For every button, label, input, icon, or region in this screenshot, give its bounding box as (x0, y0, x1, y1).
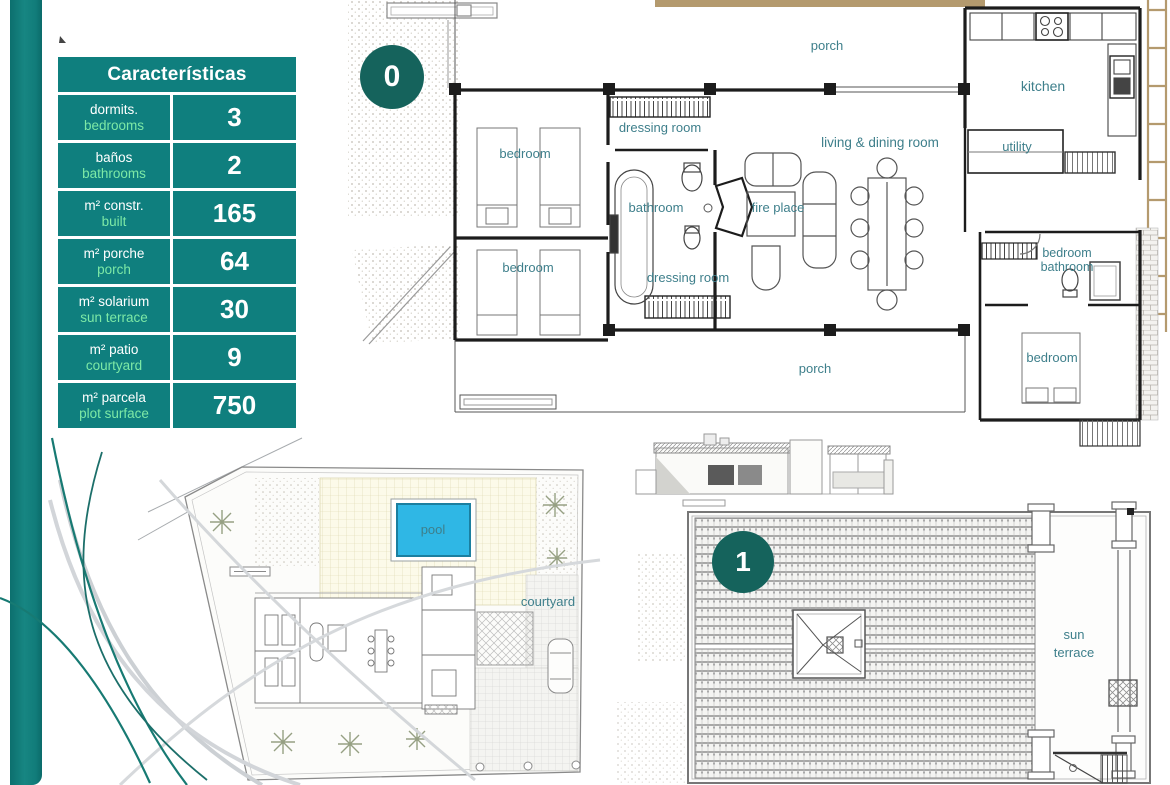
roof-vent (1109, 680, 1137, 706)
label-es: m² constr. (84, 198, 143, 213)
gate (230, 567, 270, 576)
label-es: m² patio (90, 342, 139, 357)
level-1-badge: 1 (712, 531, 774, 593)
label-utility: utility (1002, 139, 1032, 154)
elevation-lines (636, 434, 893, 506)
courtyard-hatch (477, 612, 533, 665)
label-en: bathrooms (82, 166, 146, 181)
stairs-hatch (1065, 152, 1115, 173)
pool: pool (391, 499, 476, 561)
table-title: Características (58, 57, 296, 92)
label-fire-place: fire place (752, 200, 805, 215)
label-living-dining: living & dining room (821, 135, 939, 150)
row-label: m² porche porch (58, 239, 170, 284)
cursor-mark (59, 36, 66, 43)
left-accent-bar (10, 0, 42, 785)
level-0-badge: 0 (360, 45, 424, 109)
row-value: 30 (173, 287, 296, 332)
pool-label: pool (421, 522, 446, 537)
label-es: m² solarium (79, 294, 150, 309)
elevation-sketch (628, 432, 898, 507)
table-row: dormits. bedrooms 3 (58, 95, 296, 140)
label-ensuite-line1: bedroom (1042, 246, 1091, 260)
label-en: plot surface (79, 406, 149, 421)
exterior-stairs (1080, 420, 1140, 446)
row-value: 64 (173, 239, 296, 284)
table-row: m² parcela plot surface 750 (58, 383, 296, 428)
label-es: m² porche (84, 246, 145, 261)
bed-right (1022, 333, 1080, 403)
label-bedroom-top: bedroom (499, 146, 550, 161)
dining-set (851, 158, 923, 310)
row-value: 9 (173, 335, 296, 380)
row-value: 3 (173, 95, 296, 140)
fireplace (704, 178, 752, 236)
label-en: bedrooms (84, 118, 144, 133)
car (548, 639, 573, 693)
label-kitchen: kitchen (1021, 78, 1065, 94)
site-dotted-area (255, 478, 319, 566)
table-row: m² porche porch 64 (58, 239, 296, 284)
label-bedroom-right: bedroom (1026, 350, 1077, 365)
floor-plan-level0: porch kitchen dressing room living & din… (440, 0, 1170, 448)
label-ensuite-line2: bathroom (1041, 260, 1094, 274)
row-label: dormits. bedrooms (58, 95, 170, 140)
courtyard-label: courtyard (521, 594, 575, 609)
skylight (793, 610, 865, 678)
row-label: baños bathrooms (58, 143, 170, 188)
site-plan: pool (170, 455, 610, 785)
table-row: m² solarium sun terrace 30 (58, 287, 296, 332)
characteristics-table: Características dormits. bedrooms 3 baño… (58, 57, 296, 428)
sun-terrace-line1: sun (1064, 627, 1085, 642)
row-label: m² solarium sun terrace (58, 287, 170, 332)
label-dressing-room-top: dressing room (619, 120, 701, 135)
label-es: dormits. (90, 102, 138, 117)
living-furniture (745, 153, 836, 290)
label-es: baños (96, 150, 133, 165)
brochure-page: porch kitchen dressing room living & din… (0, 0, 1170, 785)
label-porch-bottom: porch (799, 361, 832, 376)
table-row: m² patio courtyard 9 (58, 335, 296, 380)
row-value: 2 (173, 143, 296, 188)
sun-terrace-line2: terrace (1054, 645, 1094, 660)
label-en: built (102, 214, 127, 229)
label-es: m² parcela (82, 390, 146, 405)
label-dressing-room-bottom: dressing room (647, 270, 729, 285)
table-row: m² constr. built 165 (58, 191, 296, 236)
table-row: baños bathrooms 2 (58, 143, 296, 188)
row-label: m² patio courtyard (58, 335, 170, 380)
label-bedroom-mid: bedroom (502, 260, 553, 275)
label-bathroom: bathroom (629, 200, 684, 215)
label-en: porch (97, 262, 131, 277)
label-en: courtyard (86, 358, 142, 373)
label-porch-top: porch (811, 38, 844, 53)
row-value: 750 (173, 383, 296, 428)
kitchen-counters (970, 13, 1136, 136)
row-value: 165 (173, 191, 296, 236)
row-label: m² parcela plot surface (58, 383, 170, 428)
window-lines (455, 0, 965, 412)
label-en: sun terrace (80, 310, 148, 325)
row-label: m² constr. built (58, 191, 170, 236)
